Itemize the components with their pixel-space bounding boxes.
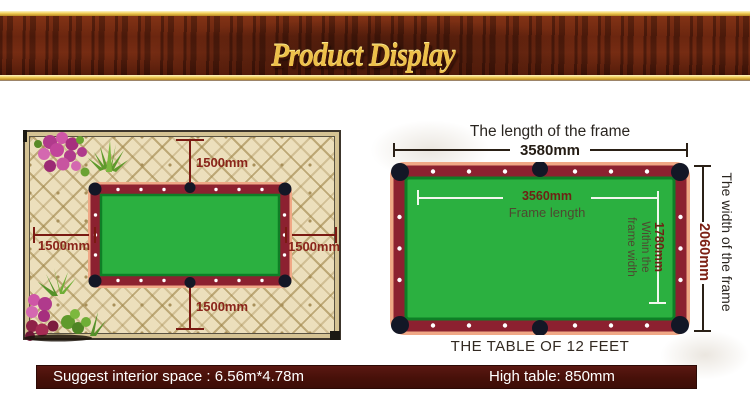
clearance-line-right bbox=[292, 234, 337, 236]
clearance-tick-left bbox=[33, 227, 35, 243]
inner-length-label: 3560mm bbox=[503, 189, 591, 203]
flower-cluster-bottom-left-icon bbox=[20, 264, 120, 342]
interior-space-text: Suggest interior space : 6.56m*4.78m bbox=[53, 366, 304, 388]
inner-length-caption: Frame length bbox=[493, 205, 601, 220]
outer-length-label: 3580mm bbox=[505, 142, 595, 159]
clearance-tick-right-inner bbox=[285, 227, 287, 243]
product-display-page: Product Display bbox=[0, 0, 750, 419]
frame-length-title: The length of the frame bbox=[440, 123, 660, 141]
table-height-text: High table: 850mm bbox=[489, 366, 615, 388]
inner-width-caption-line1: Within the bbox=[638, 199, 652, 295]
outer-length-tick-right bbox=[686, 143, 688, 157]
banner: Product Display bbox=[0, 11, 750, 80]
flower-cluster-top-left-icon bbox=[30, 128, 135, 180]
clearance-line-top bbox=[189, 140, 191, 183]
page-title: Product Display bbox=[246, 37, 480, 75]
outer-length-tick-left bbox=[393, 143, 395, 157]
outer-length-line-right bbox=[590, 149, 688, 151]
outer-width-tick-top bbox=[694, 165, 711, 167]
inner-width-caption-line2: frame width bbox=[624, 199, 638, 295]
room-corner-mark bbox=[330, 331, 340, 340]
outer-width-tick-bottom bbox=[694, 330, 711, 332]
inner-width-label-block: 1780mm Within the frame width bbox=[624, 199, 666, 295]
inner-width-tick-bottom bbox=[649, 302, 666, 304]
clearance-label-top: 1500mm bbox=[196, 155, 248, 170]
clearance-line-bottom bbox=[189, 288, 191, 329]
clearance-label-left: 1500mm bbox=[38, 238, 90, 253]
clearance-tick-bottom bbox=[176, 328, 204, 330]
table-size-caption: THE TABLE OF 12 FEET bbox=[440, 338, 640, 355]
frame-width-title: The width of the frame bbox=[719, 163, 735, 321]
outer-width-label: 2060mm bbox=[694, 216, 712, 288]
inner-width-label: 1780mm bbox=[652, 199, 666, 295]
inner-length-line-left bbox=[418, 197, 503, 199]
banner-gold-border-bottom bbox=[0, 75, 750, 80]
clearance-line-left bbox=[33, 234, 89, 236]
outer-width-line-top bbox=[702, 166, 704, 222]
room-corner-mark bbox=[23, 130, 27, 142]
spec-footer-bar: Suggest interior space : 6.56m*4.78m Hig… bbox=[36, 365, 697, 389]
outer-width-line-bottom bbox=[702, 284, 704, 331]
inner-length-tick-left bbox=[417, 190, 419, 205]
clearance-label-right: 1500mm bbox=[288, 239, 340, 254]
clearance-tick-left-inner bbox=[94, 227, 96, 243]
clearance-tick-top bbox=[176, 139, 204, 141]
outer-length-line-left bbox=[393, 149, 510, 151]
clearance-label-bottom: 1500mm bbox=[196, 299, 248, 314]
